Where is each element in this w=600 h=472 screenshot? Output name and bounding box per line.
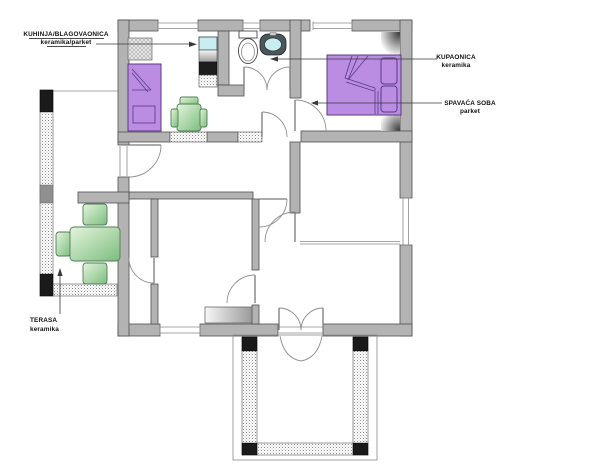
toilet-icon bbox=[239, 31, 258, 64]
french-doors bbox=[279, 308, 323, 361]
washbasin-icon bbox=[260, 33, 286, 56]
corner-shade bbox=[381, 32, 400, 54]
floor-plan-drawing: KUHINJA/BLAGOVAONICA keramika/parket KUP… bbox=[0, 0, 600, 472]
door-terrace-entry bbox=[129, 145, 161, 177]
door-hall-junction-1 bbox=[259, 199, 287, 227]
label-subtitle: keramika bbox=[442, 62, 471, 69]
label-subtitle: keramika/parket bbox=[41, 39, 93, 46]
refrigerator-icon bbox=[128, 38, 152, 60]
dining-armchair-icon bbox=[171, 97, 207, 131]
terrace-lower bbox=[233, 335, 377, 460]
window-top-1 bbox=[158, 22, 198, 31]
kitchen-sink-icon bbox=[199, 37, 217, 50]
window-top-2 bbox=[243, 22, 260, 31]
label-subtitle: keramika bbox=[30, 326, 59, 333]
door-bathroom bbox=[244, 67, 290, 90]
counter-icon bbox=[199, 50, 217, 62]
label-title: KUHINJA/BLAGOVAONICA bbox=[23, 31, 108, 38]
arrow-right-icon bbox=[189, 42, 197, 47]
terrace-railing-bottom bbox=[53, 284, 117, 296]
window-right bbox=[401, 198, 411, 245]
door-bedroom bbox=[295, 100, 326, 131]
label-kitchen-dining: KUHINJA/BLAGOVAONICA keramika/parket bbox=[23, 31, 197, 47]
label-subtitle: parket bbox=[460, 108, 481, 115]
bedroom-furniture bbox=[327, 32, 401, 131]
door-room-a bbox=[129, 258, 154, 283]
label-title: TERASA bbox=[30, 317, 57, 324]
terrace-railing-bottom bbox=[257, 443, 353, 455]
door-kitchen-hall bbox=[262, 112, 287, 137]
label-title: SPAVAĆA SOBA bbox=[444, 98, 496, 107]
door-room-b bbox=[227, 275, 255, 303]
window-bottom bbox=[160, 326, 200, 335]
terrace-chair-icon bbox=[56, 232, 71, 256]
window-living-corner bbox=[300, 242, 400, 245]
floor-plan-canvas: KUHINJA/BLAGOVAONICA keramika/parket KUP… bbox=[0, 0, 600, 472]
stove-icon bbox=[199, 62, 217, 75]
door-sill-left-wall bbox=[120, 146, 127, 176]
arrow-up-icon bbox=[57, 268, 62, 276]
terrace-railing-left bbox=[242, 337, 257, 455]
arrow-left-icon bbox=[270, 56, 278, 61]
terrace-railing-right bbox=[353, 337, 368, 455]
door-hall-junction-2 bbox=[265, 212, 295, 242]
label-title: KUPAONICA bbox=[436, 54, 476, 61]
kitchen-furniture bbox=[128, 37, 217, 131]
terrace-dining-set-icon bbox=[56, 204, 120, 284]
terrace-table-icon bbox=[70, 227, 120, 261]
sofa-bed-icon bbox=[128, 64, 161, 131]
cabinet-unit-icon bbox=[199, 75, 217, 87]
cabinet-icon bbox=[205, 307, 252, 323]
window-top-3 bbox=[313, 22, 352, 31]
terrace-chair-icon bbox=[83, 204, 107, 225]
terrace-chair-icon bbox=[83, 263, 107, 284]
double-bed-icon bbox=[327, 55, 401, 115]
